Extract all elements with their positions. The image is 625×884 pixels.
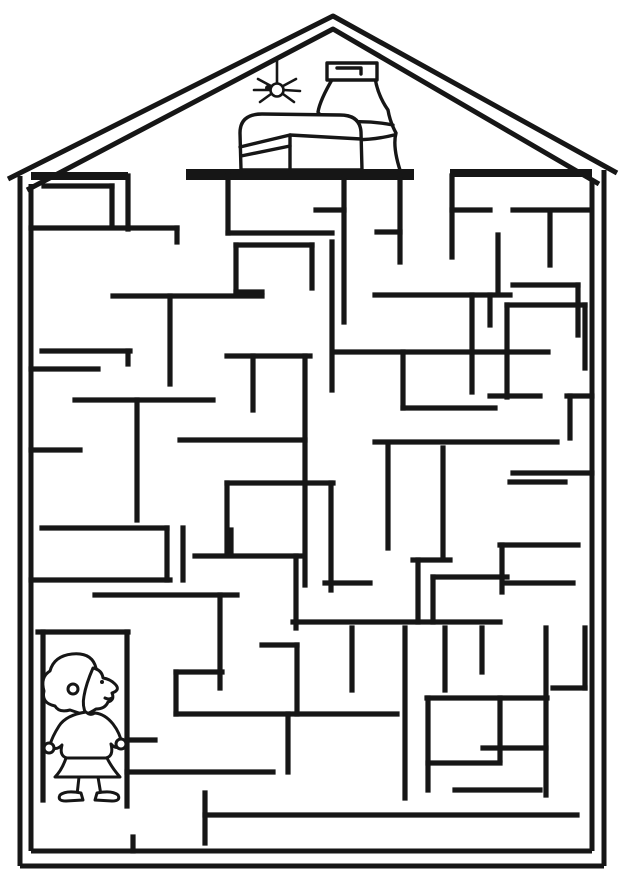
- child-shoe-right: [95, 792, 119, 801]
- house-maze-puzzle-page: [0, 0, 625, 884]
- child-shoe-left: [59, 792, 83, 801]
- attic-scene: [186, 58, 414, 180]
- child-figure: [43, 654, 126, 801]
- attic-shelf: [186, 169, 414, 180]
- child-hand-left: [44, 743, 54, 753]
- house-maze-svg: [0, 0, 625, 884]
- child-mouth: [105, 698, 112, 699]
- child-hand-right: [116, 739, 126, 749]
- child-skirt: [55, 758, 120, 777]
- spider-body: [271, 84, 284, 97]
- jug-rim: [327, 63, 377, 80]
- child-shirt: [50, 712, 122, 758]
- spider-legs-right: [283, 79, 300, 102]
- spider-legs-left: [254, 79, 271, 102]
- maze-walls: [31, 176, 592, 851]
- child-eye: [100, 680, 104, 684]
